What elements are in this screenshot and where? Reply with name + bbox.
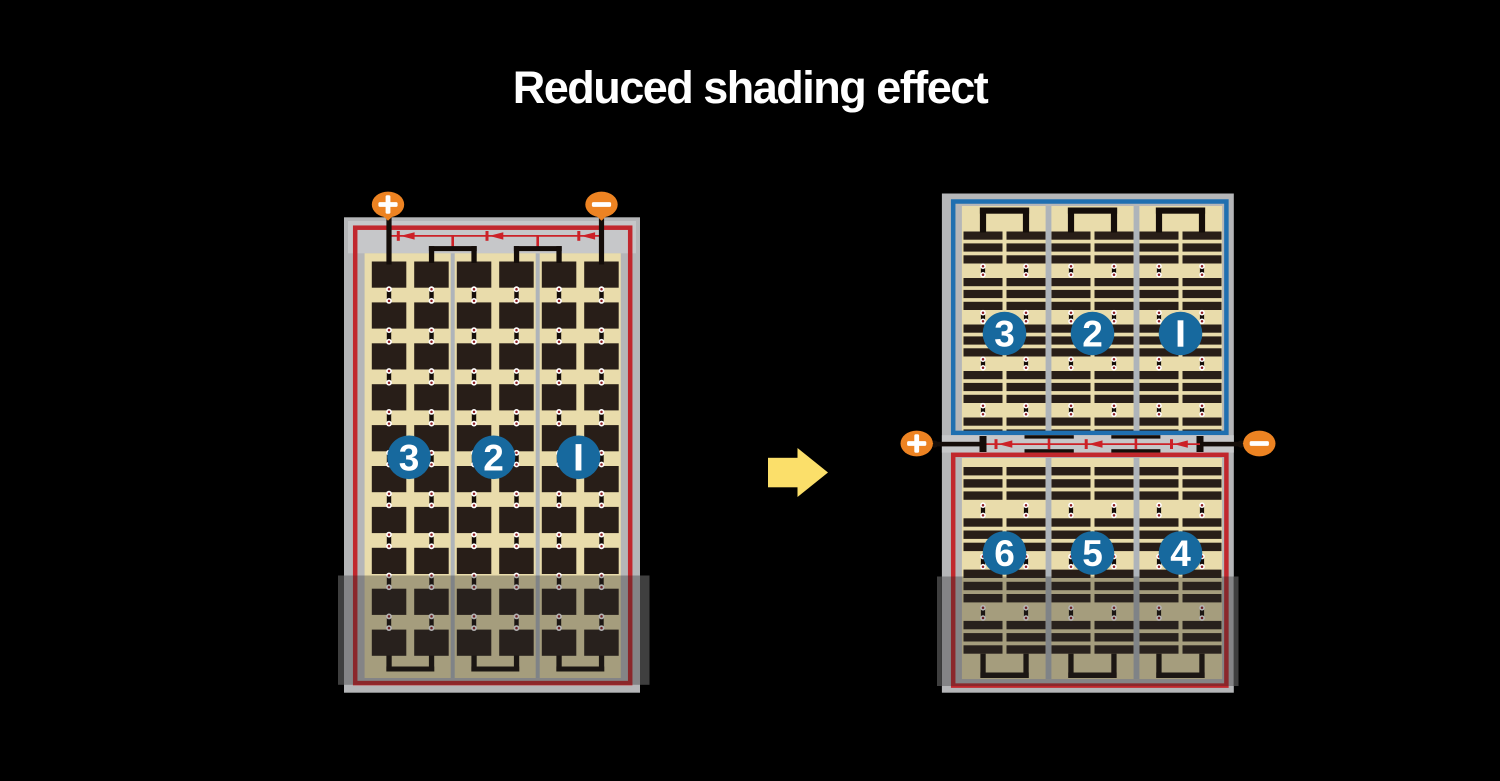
svg-text:6: 6 <box>994 533 1015 574</box>
svg-text:2: 2 <box>1082 314 1103 355</box>
svg-text:3: 3 <box>994 314 1015 355</box>
svg-text:3: 3 <box>399 438 420 479</box>
svg-text:5: 5 <box>1082 533 1103 574</box>
svg-text:2: 2 <box>483 438 504 479</box>
svg-text:4: 4 <box>1170 533 1191 574</box>
